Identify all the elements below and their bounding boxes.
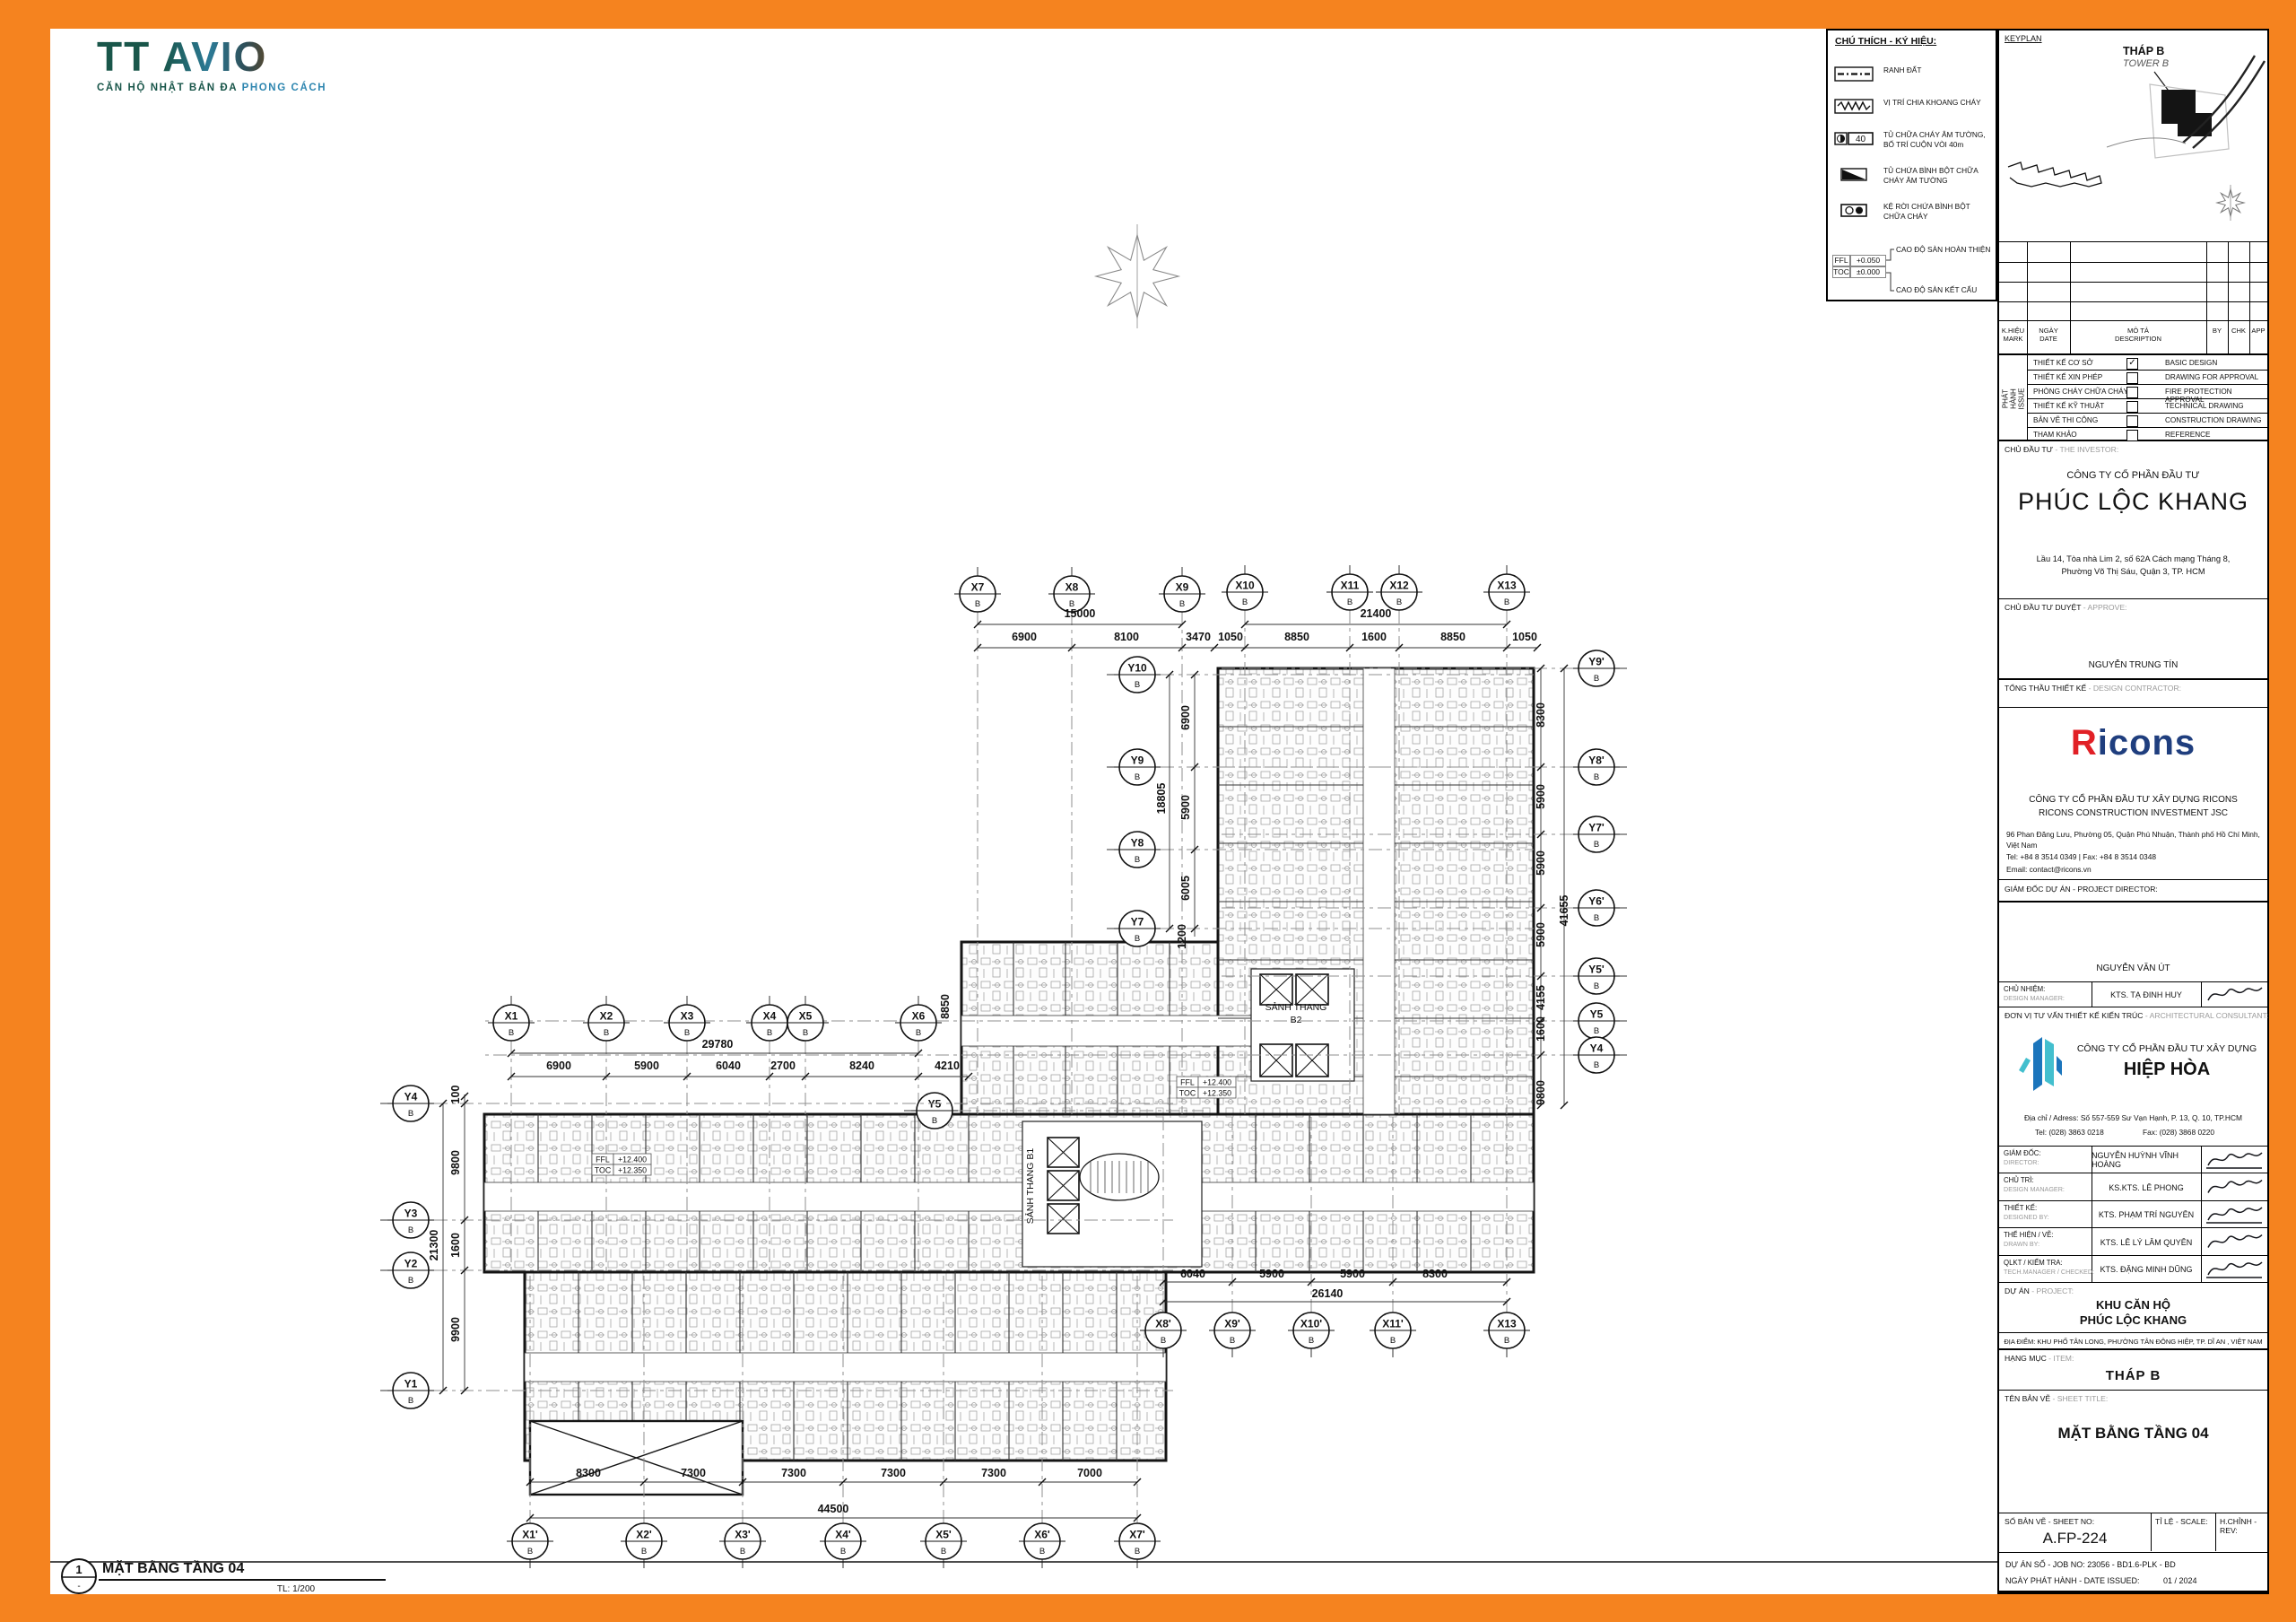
revision-header-date: NGÀY DATE — [2027, 327, 2070, 344]
contractor-company-vi: CÔNG TY CỔ PHẦN ĐẦU TƯ XÂY DỰNG RICONS — [1999, 795, 2267, 805]
scale-label: TỈ LỆ - SCALE: — [2155, 1517, 2208, 1526]
hiep-hoa-logo-icon — [2015, 1031, 2064, 1097]
sheet-frame-top — [0, 0, 2296, 29]
signature-row: THỂ HIỆN / VẼ:DRAWN BY:KTS. LÊ LÝ LÂM QU… — [1999, 1228, 2267, 1256]
svg-text:X5': X5' — [935, 1529, 952, 1541]
dimension-text: 21400 — [1361, 607, 1392, 620]
approve-section: CHỦ ĐẦU TƯ DUYỆT - APPROVE:NGUYỄN TRUNG … — [1999, 599, 2267, 680]
signature-name: KTS. TẠ ĐINH HUY — [2092, 982, 2201, 1007]
dimension-text: 8850 — [1284, 631, 1309, 643]
svg-text:X7': X7' — [1129, 1529, 1145, 1541]
svg-text:X5: X5 — [799, 1010, 813, 1023]
svg-text:X10': X10' — [1300, 1318, 1322, 1330]
brand-tagline: CĂN HỘ NHẬT BẢN ĐA PHONG CÁCH — [97, 83, 326, 93]
svg-text:B: B — [916, 1028, 921, 1038]
tower-b-footprint — [2161, 90, 2212, 136]
svg-text:X3: X3 — [681, 1010, 694, 1023]
svg-text:+12.350: +12.350 — [1203, 1089, 1231, 1098]
signature-scribble — [2201, 982, 2267, 1007]
svg-text:X4': X4' — [835, 1529, 851, 1541]
grid-bubble: X13B — [1483, 574, 1530, 610]
svg-text:B: B — [1594, 840, 1599, 850]
dimension-text: 8100 — [1114, 631, 1139, 643]
dimension-text: 1600 — [1361, 631, 1387, 643]
grid-bubble: X3B — [664, 1005, 710, 1041]
dimension-text: 1050 — [1512, 631, 1537, 643]
consultant-company-name: HIỆP HÒA — [2071, 1060, 2263, 1080]
grid-bubble: Y4B — [1573, 1037, 1620, 1073]
revision-header-desc: MÔ TẢ DESCRIPTION — [2070, 327, 2206, 344]
keyplan-section: KEYPLANTHÁP BTOWER B — [1999, 31, 2267, 242]
signature-role-en: DRAWN BY: — [2004, 1240, 2039, 1248]
contractor-section-label: TỔNG THẦU THIẾT KẾ - DESIGN CONTRACTOR: — [2005, 684, 2181, 693]
consultant-address: Địa chỉ / Adress: Số 557-559 Sư Vạn Hạnh… — [1999, 1113, 2267, 1122]
revision-label: H.CHỈNH - REV: — [2220, 1517, 2267, 1535]
dimension-text: 6040 — [1180, 1268, 1205, 1280]
svg-text:X8: X8 — [1065, 581, 1079, 594]
grid-bubble: X10'B — [1288, 1312, 1335, 1348]
svg-text:X1': X1' — [522, 1529, 538, 1541]
grid-bubble: X9'B — [1209, 1312, 1256, 1348]
dimension-text: 8240 — [849, 1060, 874, 1072]
svg-text:Y5: Y5 — [1590, 1008, 1604, 1021]
boundary-dashed-line-icon — [1834, 65, 1875, 84]
grid-bubble: Y5'B — [1573, 958, 1620, 994]
svg-text:B: B — [1179, 599, 1185, 609]
svg-text:B: B — [408, 1225, 413, 1235]
investor-section-label: CHỦ ĐẦU TƯ - THE INVESTOR: — [2005, 445, 2118, 454]
signature-role-vi: QLKT / KIỂM TRA: — [2004, 1259, 2063, 1267]
legend-item: KỆ RỜI CHỨA BÌNH BỘT CHỮA CHÁY — [1828, 201, 1996, 233]
sheet-frame-bottom — [0, 1594, 2296, 1622]
legend-item-label: VỊ TRÍ CHIA KHOANG CHÁY — [1883, 98, 1993, 108]
issue-row-en: REFERENCE — [2165, 431, 2211, 439]
issue-checkbox — [2126, 415, 2138, 427]
item-section: HẠNG MỤC - ITEM:THÁP B — [1999, 1350, 2267, 1391]
svg-text:X9': X9' — [1224, 1318, 1240, 1330]
svg-text:Y5': Y5' — [1588, 964, 1605, 976]
svg-text:B: B — [975, 599, 980, 609]
dimension-text: 7300 — [981, 1467, 1006, 1479]
dimension-text: 1200 — [1176, 924, 1188, 949]
svg-text:B: B — [1594, 913, 1599, 923]
svg-text:B: B — [1390, 1336, 1396, 1346]
low-rise-building-outline — [2008, 162, 2101, 187]
signature-row: QLKT / KIỂM TRA:TECH.MANAGER / CHECKED:K… — [1999, 1256, 2267, 1283]
powder-extinguisher-cabinet-icon — [1834, 165, 1875, 185]
issue-row-en: CONSTRUCTION DRAWING — [2165, 416, 2262, 424]
investor-address: Lầu 14, Tòa nhà Lim 2, số 62A Cách mạng … — [1999, 554, 2267, 563]
grid-bubble: X11B — [1326, 574, 1373, 610]
svg-text:B: B — [408, 1396, 413, 1406]
dimension-text: 7000 — [1077, 1467, 1102, 1479]
grid-bubble: X6B — [895, 1005, 942, 1041]
approve-section-label: CHỦ ĐẦU TƯ DUYỆT - APPROVE: — [2005, 603, 2126, 612]
revision-header-app: APP — [2249, 327, 2267, 335]
svg-text:B: B — [509, 1028, 514, 1038]
svg-text:B: B — [1396, 597, 1402, 607]
job-info-section: DỰ ÁN SỐ - JOB NO: 23056 - BD1.6-PLK - B… — [1999, 1553, 2267, 1592]
signature-role-en: DESIGNED BY: — [2004, 1213, 2049, 1221]
svg-text:B: B — [1135, 855, 1140, 865]
job-no: DỰ ÁN SỐ - JOB NO: 23056 - BD1.6-PLK - B… — [2005, 1560, 2176, 1569]
sheet-title-text: MẶT BẰNG TẦNG 04 — [1999, 1425, 2267, 1443]
svg-text:Y1: Y1 — [404, 1378, 418, 1391]
investor-address-2: Phường Võ Thị Sáu, Quận 3, TP. HCM — [1999, 567, 2267, 576]
drawing-sheet: X7BX8BX9BX10BX11BX12BX13BY10BY9BY8BY7BY9… — [0, 0, 2296, 1622]
grid-bubble: Y10B — [1114, 657, 1161, 693]
grid-bubble: X12B — [1376, 574, 1422, 610]
svg-text:X8': X8' — [1155, 1318, 1171, 1330]
svg-text:X13: X13 — [1497, 580, 1517, 592]
svg-text:+12.400: +12.400 — [1203, 1078, 1231, 1087]
issue-label: PHÁT HÀNH ISSUE — [2001, 362, 2026, 434]
fire-compartment-zigzag-icon — [1834, 97, 1875, 117]
issue-row-en: BASIC DESIGN — [2165, 359, 2217, 367]
dimension-text: 9800 — [1535, 1080, 1547, 1105]
issue-checkbox — [2126, 387, 2138, 398]
svg-text:B: B — [684, 1028, 690, 1038]
dimension-text: 5900 — [1535, 850, 1547, 876]
dimension-text: 6900 — [546, 1060, 571, 1072]
grid-bubble: Y4B — [387, 1086, 434, 1121]
svg-text:FFL: FFL — [1180, 1078, 1195, 1087]
plan-geometry — [484, 668, 1534, 1495]
dimension-text: 1050 — [1218, 631, 1243, 643]
project-director-name: NGUYỄN VĂN ÚT — [1999, 964, 2267, 973]
signature-role-en: DIRECTOR: — [2004, 1158, 2039, 1166]
svg-text:B: B — [527, 1547, 533, 1557]
grid-bubble: Y5B — [1573, 1003, 1620, 1039]
svg-text:-: - — [77, 1582, 80, 1591]
signature-scribble — [2201, 1201, 2267, 1228]
svg-text:B: B — [1594, 1026, 1599, 1036]
ricons-logo: Ricons — [1999, 723, 2267, 763]
lobby-b1-label: SẢNH THANG B1 — [1024, 1148, 1036, 1225]
view-title: 1-MẶT BẰNG TẦNG 04TL: 1/200 — [50, 1559, 1997, 1594]
signature-name: KTS. ĐẶNG MINH DŨNG — [2092, 1256, 2201, 1283]
svg-text:X6: X6 — [912, 1010, 926, 1023]
svg-text:+12.400: +12.400 — [618, 1155, 647, 1164]
issue-section: PHÁT HÀNH ISSUETHIẾT KẾ CƠ SỞ✓BASIC DESI… — [1999, 355, 2267, 441]
dimension-text: 6900 — [1179, 705, 1192, 730]
dimension-text: 6900 — [1012, 631, 1037, 643]
dimension-text: 9800 — [449, 1150, 462, 1175]
contractor-email: Email: contact@ricons.vn — [2006, 865, 2092, 874]
grid-bubble: X2'B — [621, 1523, 667, 1559]
dimension-text: 8300 — [1535, 702, 1547, 728]
svg-text:B: B — [604, 1028, 609, 1038]
keyplan-drawing — [1999, 31, 2267, 240]
dimension-text: 9900 — [449, 1317, 462, 1342]
grid-bubble: X2B — [583, 1005, 630, 1041]
svg-text:B: B — [1135, 1547, 1140, 1557]
issue-row-vi: THIẾT KẾ CƠ SỞ — [2033, 359, 2093, 367]
svg-text:B: B — [803, 1028, 808, 1038]
dimension-text: 5900 — [1259, 1268, 1284, 1280]
svg-text:B: B — [1039, 1547, 1045, 1557]
fire-hose-cabinet-icon: 40 — [1834, 129, 1875, 149]
project-location: ĐỊA ĐIỂM: KHU PHỐ TÂN LONG, PHƯỜNG TÂN Đ… — [1999, 1338, 2267, 1346]
investor-section: CHỦ ĐẦU TƯ - THE INVESTOR:CÔNG TY CỔ PHẦ… — [1999, 441, 2267, 599]
dimension-text: 6040 — [716, 1060, 741, 1072]
grid-bubble: Y1B — [387, 1373, 434, 1408]
svg-text:X12: X12 — [1389, 580, 1409, 592]
signature-name: KTS. LÊ LÝ LÂM QUYÊN — [2092, 1228, 2201, 1256]
grid-bubble: X7B — [954, 576, 1001, 612]
signature-row: GIÁM ĐỐC:DIRECTOR:NGUYỄN HUỲNH VĨNH HOÀN… — [1999, 1147, 2267, 1173]
svg-text:B: B — [941, 1547, 946, 1557]
project-section-label: DỰ ÁN - PROJECT: — [2005, 1286, 2074, 1295]
grid-bubble: Y8'B — [1573, 749, 1620, 785]
item-section-label: HẠNG MỤC - ITEM: — [2005, 1354, 2074, 1363]
legend-title: CHÚ THÍCH - KÝ HIỆU: — [1835, 36, 1936, 47]
svg-text:+12.350: +12.350 — [618, 1166, 647, 1175]
level-annotation: FFL+12.400TOC+12.350 — [592, 1154, 651, 1175]
svg-text:40: 40 — [1856, 135, 1866, 144]
svg-text:TOC: TOC — [595, 1166, 612, 1175]
brand-wordmark: TT AVIO — [97, 36, 326, 77]
dimension-text: 29780 — [702, 1038, 734, 1051]
svg-text:B: B — [1347, 597, 1352, 607]
sheet-frame-right — [2269, 0, 2296, 1622]
grid-bubble: X5B — [782, 1005, 829, 1041]
legend-box: CHÚ THÍCH - KÝ HIỆU: RANH ĐẤTVỊ TRÍ CHIA… — [1826, 29, 1997, 301]
svg-text:B: B — [1242, 597, 1248, 607]
consultant-tel: Tel: (028) 3863 0218 — [2035, 1128, 2104, 1137]
grid-bubble: X1B — [488, 1005, 535, 1041]
svg-text:X13: X13 — [1497, 1318, 1517, 1330]
dimension-text: 8850 — [1440, 631, 1465, 643]
svg-text:B: B — [408, 1109, 413, 1119]
grid-bubble: Y8B — [1114, 832, 1161, 868]
level-key-cell: FFL — [1832, 255, 1850, 266]
svg-text:B: B — [1504, 597, 1509, 607]
signature-row: CHỦ TRÌ:DESIGN MANAGER:KS.KTS. LÊ PHONG — [1999, 1173, 2267, 1201]
dimension-text: 7300 — [781, 1467, 806, 1479]
svg-text:Y7: Y7 — [1131, 916, 1144, 929]
issue-row-vi: THIẾT KẾ KỸ THUẬT — [2033, 402, 2104, 410]
dimension-text: 8300 — [576, 1467, 601, 1479]
revision-header-chk: CHK — [2228, 327, 2249, 335]
svg-text:X2: X2 — [600, 1010, 613, 1023]
grid-bubble: X6'B — [1019, 1523, 1065, 1559]
signature-name: NGUYỄN HUỲNH VĨNH HOÀNG — [2092, 1147, 2201, 1173]
grid-bubble: X4'B — [820, 1523, 866, 1559]
grid-bubble: Y6'B — [1573, 890, 1620, 926]
svg-text:X3': X3' — [735, 1529, 751, 1541]
dimension-text: 100 — [449, 1086, 462, 1104]
svg-text:X2': X2' — [636, 1529, 652, 1541]
sheet-no-label: SỐ BẢN VẼ - SHEET NO: — [2005, 1517, 2094, 1526]
sheet-no-section: SỐ BẢN VẼ - SHEET NO:A.FP-224TỈ LỆ - SCA… — [1999, 1513, 2267, 1553]
legend-item: TỦ CHỨA BÌNH BỘT CHỮA CHÁY ÂM TƯỜNG — [1828, 165, 1996, 197]
svg-text:Y3: Y3 — [404, 1208, 418, 1220]
svg-text:B: B — [767, 1028, 772, 1038]
issue-row-vi: THIẾT KẾ XIN PHÉP — [2033, 373, 2102, 381]
consultant-section: ĐƠN VỊ TƯ VẤN THIẾT KẾ KIẾN TRÚC - ARCHI… — [1999, 1007, 2267, 1147]
sheet-title-section-label: TÊN BẢN VẼ - SHEET TITLE: — [2005, 1394, 2108, 1403]
view-scale: TL: 1/200 — [277, 1584, 316, 1594]
dimension-text: 3470 — [1186, 631, 1211, 643]
svg-text:B2: B2 — [1291, 1015, 1302, 1025]
legend-item-label: TỦ CHỮA CHÁY ÂM TƯỜNG, BỐ TRÍ CUỘN VÒI 4… — [1883, 130, 1993, 150]
lobby-b2-label: SẢNH THANG — [1265, 1001, 1327, 1013]
dimension-text: 6005 — [1179, 876, 1192, 901]
signature-role-en: TECH.MANAGER / CHECKED: — [2004, 1268, 2094, 1276]
grid-bubble: X1'B — [507, 1523, 553, 1559]
issue-checkbox — [2126, 401, 2138, 413]
svg-text:B: B — [408, 1276, 413, 1286]
legend-item-label: KỆ RỜI CHỨA BÌNH BỘT CHỮA CHÁY — [1883, 202, 1993, 222]
issue-checkbox: ✓ — [2126, 358, 2138, 370]
svg-text:B: B — [840, 1547, 846, 1557]
svg-text:Y10: Y10 — [1127, 662, 1147, 675]
dimension-text: 4155 — [1535, 985, 1547, 1010]
dimension-text: 8300 — [1422, 1268, 1448, 1280]
signature-role-vi: THIẾT KẾ: — [2004, 1204, 2037, 1212]
grid-bubble: Y7'B — [1573, 816, 1620, 852]
grid-bubble: X3'B — [719, 1523, 766, 1559]
project-section: DỰ ÁN - PROJECT:KHU CĂN HỘPHÚC LỘC KHANG… — [1999, 1283, 2267, 1350]
date-issued-value: 01 / 2024 — [2163, 1576, 2197, 1585]
signature-name: KS.KTS. LÊ PHONG — [2092, 1173, 2201, 1201]
level-value-cell: +0.050 — [1850, 255, 1886, 266]
item-name: THÁP B — [1999, 1368, 2267, 1383]
revision-rows-empty — [1999, 242, 2267, 321]
svg-text:B: B — [1161, 1336, 1166, 1346]
grid-bubble: X9B — [1159, 576, 1205, 612]
svg-text:B: B — [1594, 674, 1599, 684]
powder-extinguisher-shelf-icon — [1834, 201, 1875, 221]
svg-text:Y9: Y9 — [1131, 754, 1144, 767]
sheet-no-value: A.FP-224 — [1999, 1530, 2151, 1548]
revision-header: K.HIỆU MARKNGÀY DATEMÔ TẢ DESCRIPTIONBYC… — [1999, 321, 2267, 355]
issue-row-en: TECHNICAL DRAWING — [2165, 402, 2244, 410]
issue-checkbox — [2126, 430, 2138, 441]
level-key-cell: TOC — [1832, 266, 1850, 278]
dimension-text: 5900 — [634, 1060, 659, 1072]
grid-bubble: X5'B — [920, 1523, 967, 1559]
investor-company-name: PHÚC LỘC KHANG — [1999, 488, 2267, 516]
signature-name: KTS. PHẠM TRÍ NGUYÊN — [2092, 1201, 2201, 1228]
dimension-text: 5900 — [1179, 795, 1192, 820]
signature-rows: GIÁM ĐỐC:DIRECTOR:NGUYỄN HUỲNH VĨNH HOÀN… — [1999, 1147, 2267, 1283]
legend-item-label: TỦ CHỨA BÌNH BỘT CHỮA CHÁY ÂM TƯỜNG — [1883, 166, 1993, 186]
svg-text:B: B — [1135, 680, 1140, 690]
contractor-tel: Tel: +84 8 3514 0349 | Fax: +84 8 3514 0… — [2006, 852, 2156, 861]
svg-text:X11': X11' — [1382, 1318, 1404, 1330]
project-director-label: GIÁM ĐỐC DỰ ÁN - PROJECT DIRECTOR: — [2005, 885, 2158, 894]
svg-text:X11: X11 — [1341, 580, 1360, 592]
svg-text:Y4: Y4 — [404, 1091, 418, 1103]
svg-text:X4: X4 — [763, 1010, 777, 1023]
consultant-company-type: CÔNG TY CỔ PHẦN ĐẦU TƯ XÂY DỰNG — [2071, 1043, 2263, 1054]
svg-text:X7: X7 — [971, 581, 985, 594]
issue-row-vi: PHÒNG CHÁY CHỮA CHÁY — [2033, 388, 2128, 396]
project-name-1: KHU CĂN HỘ — [1999, 1298, 2267, 1312]
title-block: KEYPLANTHÁP BTOWER BK.HIỆU MARKNGÀY DATE… — [1997, 29, 2269, 1594]
svg-text:B: B — [1135, 934, 1140, 944]
dimension-text: 41655 — [1558, 895, 1570, 927]
svg-text:B: B — [641, 1547, 647, 1557]
approver-name: NGUYỄN TRUNG TÍN — [1999, 660, 2267, 670]
svg-text:Y6': Y6' — [1588, 895, 1605, 908]
svg-text:X9: X9 — [1176, 581, 1189, 594]
signature-role-vi: THỂ HIỆN / VẼ: — [2004, 1231, 2053, 1239]
svg-text:B: B — [1594, 772, 1599, 782]
design-manager-row: CHỦ NHIỆM:DESIGN MANAGER:KTS. TẠ ĐINH HU… — [1999, 982, 2267, 1007]
dimension-text: 26140 — [1312, 1287, 1344, 1300]
legend-item: 40TỦ CHỮA CHÁY ÂM TƯỜNG, BỐ TRÍ CUỘN VÒI… — [1828, 129, 1996, 161]
view-number: 1 — [75, 1563, 82, 1576]
level-label-finish: CAO ĐỘ SÀN HOÀN THIỆN — [1896, 245, 1990, 254]
svg-text:B: B — [1504, 1336, 1509, 1346]
contractor-company-en: RICONS CONSTRUCTION INVESTMENT JSC — [1999, 808, 2267, 818]
consultant-fax: Fax: (028) 3868 0220 — [2143, 1128, 2214, 1137]
issue-row-vi: THAM KHẢO — [2033, 431, 2077, 439]
legend-item: VỊ TRÍ CHIA KHOANG CHÁY — [1828, 97, 1996, 129]
revision-header-by: BY — [2206, 327, 2228, 335]
svg-text:TOC: TOC — [1179, 1089, 1196, 1098]
level-value-cell: ±0.000 — [1850, 266, 1886, 278]
grid-bubble: X10B — [1222, 574, 1268, 610]
dimension-text: 7300 — [881, 1467, 906, 1479]
svg-text:B: B — [1135, 772, 1140, 782]
investor-company-type: CÔNG TY CỔ PHẦN ĐẦU TƯ — [1999, 470, 2267, 481]
signature-role-en: DESIGN MANAGER: — [2004, 994, 2065, 1002]
svg-text:Y2: Y2 — [404, 1258, 418, 1270]
dimension-text: 5900 — [1340, 1268, 1365, 1280]
design-contractor-section: TỔNG THẦU THIẾT KẾ - DESIGN CONTRACTOR:R… — [1999, 680, 2267, 982]
dimension-text: 1600 — [449, 1233, 462, 1258]
svg-text:X1: X1 — [505, 1010, 518, 1023]
date-issued-label: NGÀY PHÁT HÀNH - DATE ISSUED: — [2005, 1576, 2140, 1585]
svg-text:Y8: Y8 — [1131, 837, 1144, 850]
signature-scribble — [2201, 1147, 2267, 1173]
legend-item: RANH ĐẤT — [1828, 65, 1996, 97]
issue-checkbox — [2126, 372, 2138, 384]
dimension-text: 4210 — [935, 1060, 960, 1072]
dimension-text: 21300 — [428, 1230, 440, 1261]
dimension-text: 1600 — [1535, 1016, 1547, 1042]
grid-bubble: Y9'B — [1573, 650, 1620, 686]
consultant-section-label: ĐƠN VỊ TƯ VẤN THIẾT KẾ KIẾN TRÚC - ARCHI… — [2005, 1011, 2268, 1020]
issue-row-en: DRAWING FOR APPROVAL — [2165, 373, 2258, 381]
grid-bubble: Y9B — [1114, 749, 1161, 785]
svg-text:B: B — [1594, 1060, 1599, 1070]
grid-bubble: X8B — [1048, 576, 1095, 612]
issue-row-vi: BẢN VẼ THI CÔNG — [2033, 416, 2098, 424]
signature-row: THIẾT KẾ:DESIGNED BY:KTS. PHẠM TRÍ NGUYÊ… — [1999, 1201, 2267, 1228]
dimension-text: 18805 — [1155, 783, 1168, 815]
svg-text:Y9': Y9' — [1588, 656, 1605, 668]
svg-text:Y4: Y4 — [1590, 1042, 1604, 1055]
dimension-text: 44500 — [818, 1503, 849, 1515]
svg-text:B: B — [1230, 1336, 1235, 1346]
revision-header-mark: K.HIỆU MARK — [1999, 327, 2027, 344]
svg-text:B: B — [740, 1547, 745, 1557]
grid-bubble: X13B — [1483, 1312, 1530, 1348]
level-annotation: FFL+12.400TOC+12.350 — [1177, 1077, 1236, 1098]
svg-text:B: B — [1309, 1336, 1314, 1346]
signature-role-en: DESIGN MANAGER: — [2004, 1185, 2065, 1193]
view-title-text: MẶT BẰNG TẦNG 04 — [102, 1559, 244, 1576]
svg-text:B: B — [1594, 981, 1599, 991]
dimension-text: 5900 — [1535, 922, 1547, 947]
signature-scribble — [2201, 1256, 2267, 1283]
signature-role-vi: CHỦ NHIỆM: — [2004, 985, 2045, 993]
